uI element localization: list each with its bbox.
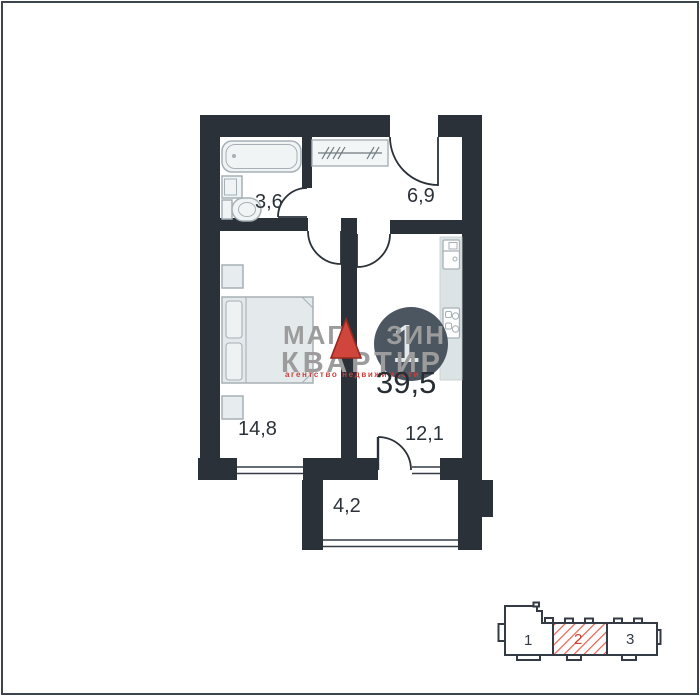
wall-bottom-left-corner <box>198 458 237 480</box>
locator-label-3: 3 <box>626 632 634 647</box>
watermark-triangle-icon <box>327 316 367 362</box>
room-label-living: 14,8 <box>238 419 277 439</box>
locator-bump <box>657 630 661 644</box>
locator-bump <box>585 619 593 624</box>
locator-bump <box>622 655 636 660</box>
nightstand-icon <box>222 265 243 288</box>
living-window <box>237 467 303 474</box>
wall-bottom-right <box>440 458 482 480</box>
locator-bump <box>567 655 581 660</box>
locator-bump <box>534 603 540 607</box>
bathtub-icon <box>222 141 301 172</box>
kitchen-window <box>412 467 440 474</box>
bathroom-sink-icon <box>222 176 242 198</box>
kitchen-door <box>357 234 390 267</box>
locator-bump <box>517 655 540 660</box>
wall-hall-kitchen <box>390 220 466 234</box>
locator-bump <box>545 618 553 623</box>
room-label-balcony: 4,2 <box>333 496 361 516</box>
nightstand-icon <box>222 396 243 419</box>
wall-top <box>200 115 390 137</box>
wall-left <box>200 115 220 480</box>
locator-label-1: 1 <box>524 633 532 648</box>
locator-bump <box>499 624 506 641</box>
wall-right <box>462 115 482 460</box>
locator-bump <box>565 619 573 624</box>
room-label-hallway: 6,9 <box>407 186 435 206</box>
living-room-door <box>308 231 341 264</box>
room-label-kitchen: 12,1 <box>405 424 444 444</box>
wall-bottom-mid <box>303 458 378 480</box>
locator-bump <box>634 619 642 624</box>
wall-balcony-right <box>458 480 482 550</box>
wardrobe-icon <box>312 140 388 166</box>
floor-plan-page: 3,6 6,9 14,8 12,1 4,2 1 39,5 МАГ ЗИН КВА… <box>0 0 700 700</box>
wall-bathroom-right <box>302 137 312 188</box>
balcony-window <box>323 540 458 547</box>
wall-balcony-left <box>302 480 323 550</box>
total-area-label: 39,5 <box>376 367 436 398</box>
locator-label-2: 2 <box>574 632 582 647</box>
wall-pillar-step <box>482 480 493 517</box>
kitchen-sink-icon <box>443 240 460 269</box>
entrance-door <box>390 137 438 186</box>
room-label-bathroom: 3,6 <box>255 192 283 212</box>
locator-bump <box>614 619 622 624</box>
watermark-text-right: ЗИН <box>386 322 446 348</box>
